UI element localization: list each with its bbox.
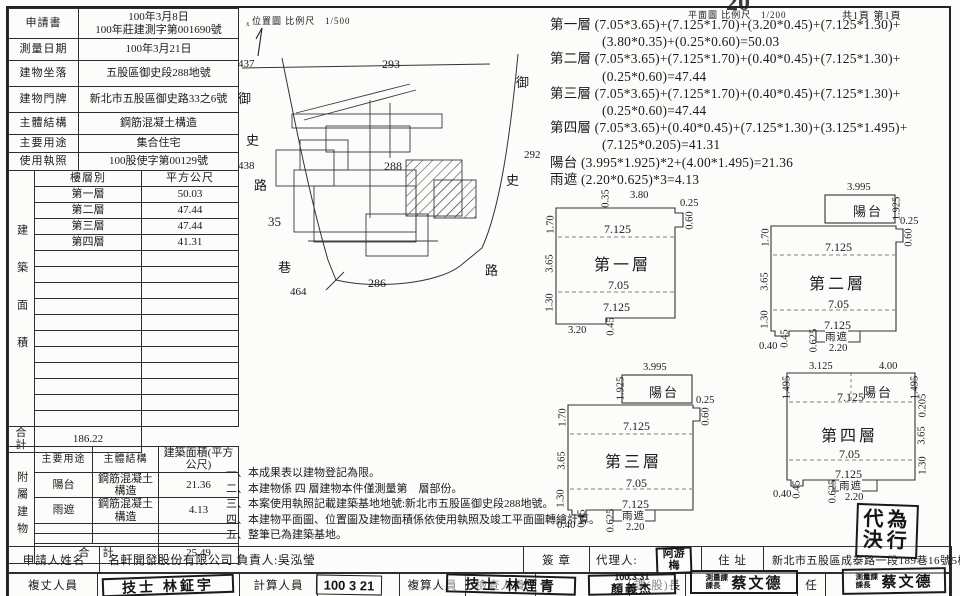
formula-line: (7.125*0.205)=41.31 — [550, 136, 954, 153]
dim: 3.80 — [630, 190, 648, 201]
dim: 7.125 — [604, 222, 631, 237]
application-info-table: 申請書 100年3月8日 100年莊建測字第001690號 測量日期 100年3… — [8, 8, 239, 171]
formula-line: 第四層 (7.05*3.65)+(0.40*0.45)+(7.125*1.30)… — [550, 119, 954, 136]
canopy-label: 雨遮 — [622, 508, 645, 523]
road-lu-right: 路 — [485, 260, 498, 279]
dim: 1.70 — [761, 228, 772, 246]
floor-plan-2-title: 第二層 — [809, 270, 866, 294]
lot-438: 438 — [238, 160, 255, 172]
empty-cell — [142, 379, 239, 395]
dim: 0.40 — [773, 489, 791, 500]
info-label: 申請書 — [9, 9, 79, 39]
north-arrow — [256, 28, 262, 56]
dim: 7.125 — [837, 390, 864, 405]
survey-result-sheet: 20 申請書 100年3月8日 100年莊建測字第001690號 測量日期 10… — [0, 0, 960, 596]
dim: 0.25 — [680, 198, 698, 209]
empty-cell — [142, 411, 239, 427]
application-date: 100年3月8日 — [80, 11, 237, 23]
floor-name: 第三層 — [35, 219, 142, 235]
balcony-label: 陽台 — [853, 201, 883, 220]
dim: 3.65 — [917, 426, 928, 444]
applicant-row: 申請人姓名 名軒開發股份有限公司 負責人:吳泓瑩 簽 章 代理人: 住 址 新北… — [8, 546, 952, 573]
use-header: 主要用途 — [35, 447, 93, 473]
north-label: x — [246, 20, 250, 28]
floor-plan-2: 3.995 陽台 1.925 0.25 0.60 1.70 3.65 1.30 … — [745, 172, 955, 357]
area-formulas: 第一層 (7.05*3.65)+(7.125*1.70)+(3.20*0.45)… — [550, 16, 954, 188]
lot-437: 437 — [238, 58, 255, 70]
dim: 7.125 — [623, 419, 650, 434]
floor-name: 第二層 — [35, 203, 142, 219]
seal-label: 簽 章 — [524, 546, 590, 573]
floor-area: 41.31 — [142, 235, 239, 251]
info-label: 使用執照 — [9, 153, 79, 171]
floor-plan-3-title: 第三層 — [605, 448, 662, 472]
director-stamp-title: 測量課課長 — [855, 573, 881, 590]
empty-cell — [35, 251, 142, 267]
lot-286: 286 — [368, 276, 386, 291]
site-plan-drawing — [238, 8, 550, 453]
dim: 1.70 — [546, 215, 557, 233]
empty-cell — [93, 533, 159, 543]
inspector-stamp: 100.3.31 顏義杰 — [588, 573, 676, 596]
dim: 0.35 — [601, 189, 612, 207]
dim: 1.30 — [918, 456, 929, 474]
agent-stamp: 阿游 梅 — [656, 546, 693, 574]
dim: 0.40 — [759, 341, 777, 352]
applicant-name-label: 申請人姓名 — [8, 546, 100, 573]
canopy-label: 雨遮 — [839, 478, 862, 493]
empty-cell — [142, 395, 239, 411]
empty-cell — [35, 299, 142, 315]
dim: 0.25 — [696, 395, 714, 406]
empty-cell — [35, 395, 142, 411]
checker-stamp: 技士 林煙青 — [446, 573, 576, 595]
surveyor-stamp: 技士 林鉦宇 — [102, 574, 235, 596]
floor-plan-1: 0.35 3.80 0.25 0.60 1.70 3.65 1.30 7.125… — [540, 185, 740, 345]
balcony-label: 陽台 — [649, 382, 679, 401]
lot-292: 292 — [524, 149, 541, 161]
attached-structure: 鋼筋混凝土構造 — [93, 498, 159, 524]
empty-cell — [142, 315, 239, 331]
canopy-label: 雨遮 — [825, 329, 848, 344]
attached-use: 陽台 — [35, 472, 93, 498]
formula-line: (3.80*0.35)+(0.25*0.60)=50.03 — [550, 33, 954, 50]
info-value: 100股使字第00129號 — [79, 153, 239, 171]
note-line: 一、本成果表以建物登記為限。 — [226, 466, 600, 482]
floor-name: 第一層 — [35, 187, 142, 203]
dim: 2.20 — [845, 492, 863, 503]
road-shi-right: 史 — [506, 170, 519, 189]
calculation-date-stamp: 100 3 21 30 — [316, 574, 382, 595]
dim: 1.30 — [760, 310, 771, 328]
info-label: 建物坐落 — [9, 61, 79, 87]
dim: 3.995 — [643, 362, 667, 373]
dim: 3.65 — [760, 272, 771, 290]
dim: 7.05 — [626, 476, 647, 491]
formula-line: 第一層 (7.05*3.65)+(7.125*1.70)+(3.20*0.45)… — [550, 16, 954, 33]
application-number: 100年莊建測字第001690號 — [80, 24, 237, 36]
lot-35: 35 — [268, 214, 281, 230]
empty-cell — [142, 363, 239, 379]
empty-cell — [35, 533, 93, 543]
dim: 0.60 — [701, 407, 712, 425]
dim: 3.125 — [809, 361, 833, 372]
floor-area: 50.03 — [142, 187, 239, 203]
director-stamp-name: 蔡文德 — [881, 570, 932, 592]
floor-plan-4-title: 第四層 — [821, 422, 878, 446]
info-value: 100年3月8日 100年莊建測字第001690號 — [79, 9, 239, 39]
calculator-label: 計算人員 — [240, 573, 318, 596]
dim: 7.125 — [603, 300, 630, 315]
floor-area: 47.44 — [142, 203, 239, 219]
floor-plan-1-title: 第一層 — [594, 251, 651, 275]
floor-name: 第四層 — [35, 235, 142, 251]
dim: 7.125 — [825, 240, 852, 255]
empty-cell — [35, 315, 142, 331]
inspector-name: 顏義杰 — [611, 583, 653, 596]
structure-header: 主體結構 — [93, 447, 159, 473]
empty-cell — [142, 267, 239, 283]
road-yu-left: 御 — [238, 88, 251, 107]
building-area-table: 建築面積 樓層別 平方公尺 第一層 50.03 第二層 47.44 第三層 47… — [8, 170, 239, 453]
dim: 1.495 — [781, 376, 792, 400]
empty-cell — [35, 379, 142, 395]
empty-cell — [35, 267, 142, 283]
dim: 0.45 — [780, 329, 791, 347]
attached-structure: 鋼筋混凝土構造 — [93, 472, 159, 498]
chief-stamp: 測量課課長 蔡文德 — [690, 570, 798, 594]
floor-header: 樓層別 — [35, 171, 142, 187]
floor-area: 47.44 — [142, 219, 239, 235]
formula-line: (0.25*0.60)=47.44 — [550, 102, 954, 119]
formula-line: (0.25*0.60)=47.44 — [550, 68, 954, 85]
dim: 1.30 — [545, 293, 556, 311]
empty-cell — [142, 283, 239, 299]
dim: 0.25 — [900, 216, 918, 227]
agent-stamp-line2: 梅 — [669, 560, 680, 572]
empty-cell — [35, 363, 142, 379]
formula-line: 第二層 (7.05*3.65)+(7.125*1.70)+(0.40*0.45)… — [550, 50, 954, 67]
lot-293: 293 — [382, 57, 400, 72]
dim: 4.00 — [879, 361, 897, 372]
notes-block: 一、本成果表以建物登記為限。 二、本建物係 四 層建物本件僅測量第 層部份。 三… — [226, 466, 600, 544]
note-line: 四、本建物平面圖、位置圖及建物面積係依使用執照及竣工平面圖轉繪計算。 — [226, 513, 600, 529]
empty-cell — [142, 347, 239, 363]
empty-cell — [35, 523, 93, 533]
formula-line: 陽台 (3.995*1.925)*2+(4.00*1.495)=21.36 — [550, 154, 954, 171]
dim: 3.995 — [847, 182, 871, 193]
empty-cell — [142, 299, 239, 315]
chief-stamp-title: 測量課課長 — [705, 574, 731, 591]
dim: 1.925 — [615, 377, 626, 401]
empty-cell — [35, 283, 142, 299]
empty-cell — [142, 251, 239, 267]
calc-date-text: 100 3 21 — [324, 577, 375, 593]
alley-label: 巷 — [278, 257, 291, 276]
info-label: 主體結構 — [9, 113, 79, 135]
note-line: 三、本案使用執照記載建築基地地號:新北市五股區御史段288地號。 — [226, 497, 600, 513]
road-lu-left: 路 — [254, 175, 267, 194]
area-header: 平方公尺 — [142, 171, 239, 187]
info-value: 鋼筋混凝土構造 — [79, 113, 239, 135]
chief-stamp-name: 蔡文德 — [731, 572, 782, 593]
lot-288: 288 — [384, 159, 402, 174]
dim: 7.05 — [608, 278, 629, 293]
director-stamp: 測量課課長 蔡文德 — [842, 567, 946, 595]
building-area-side-label: 建築面積 — [9, 171, 35, 427]
info-label: 測量日期 — [9, 39, 79, 61]
proxy-stamp-line2: 決行 — [862, 530, 911, 553]
dim: 0.45 — [792, 480, 803, 498]
dim: 0.625 — [827, 480, 838, 504]
empty-cell — [35, 411, 142, 427]
info-value: 100年3月21日 — [79, 39, 239, 61]
formula-line: 第三層 (7.05*3.65)+(7.125*1.70)+(0.40*0.45)… — [550, 85, 954, 102]
dim: 2.20 — [626, 522, 644, 533]
road-shi-left: 史 — [246, 130, 259, 149]
floor-plan-4: 3.125 4.00 1.495 陽台 7.125 1.495 0.205 第四… — [745, 358, 955, 508]
info-label: 主要用途 — [9, 135, 79, 153]
note-line: 五、整筆已為建築基地。 — [226, 528, 600, 544]
note-line: 二、本建物係 四 層建物本件僅測量第 層部份。 — [226, 482, 600, 498]
info-value: 新北市五股區御史路33之6號 — [79, 87, 239, 113]
dim: 7.05 — [828, 297, 849, 312]
dim: 7.05 — [839, 447, 860, 462]
dim: 0.60 — [685, 211, 696, 229]
location-map: 位置圖 比例尺 1/500 — [238, 8, 550, 453]
dim: 1.70 — [558, 408, 569, 426]
attached-use: 雨遮 — [35, 498, 93, 524]
balcony-label: 陽台 — [863, 382, 893, 401]
surveyor-label: 複丈人員 — [8, 573, 98, 596]
road-yu-right: 御 — [516, 72, 529, 91]
director-label: 任 — [798, 573, 826, 596]
empty-cell — [93, 523, 159, 533]
dim: 0.60 — [904, 228, 915, 246]
info-value: 五股區御史段288地號 — [79, 61, 239, 87]
dim: 3.20 — [568, 325, 586, 336]
applicant-name-value: 名軒開發股份有限公司 負責人:吳泓瑩 — [100, 546, 524, 573]
dim: 0.625 — [808, 329, 819, 353]
empty-cell — [35, 347, 142, 363]
empty-cell — [35, 331, 142, 347]
dim: 0.45 — [606, 317, 617, 335]
address-label: 住 址 — [702, 546, 764, 573]
proxy-approval-stamp: 代為 決行 — [855, 503, 919, 559]
dim: 0.625 — [605, 509, 616, 533]
empty-cell — [142, 331, 239, 347]
dim: 0.205 — [917, 394, 928, 418]
lot-464: 464 — [290, 286, 307, 298]
info-label: 建物門牌 — [9, 87, 79, 113]
dim: 2.20 — [829, 343, 847, 354]
dim: 3.65 — [545, 254, 556, 272]
info-value: 集合住宅 — [79, 135, 239, 153]
